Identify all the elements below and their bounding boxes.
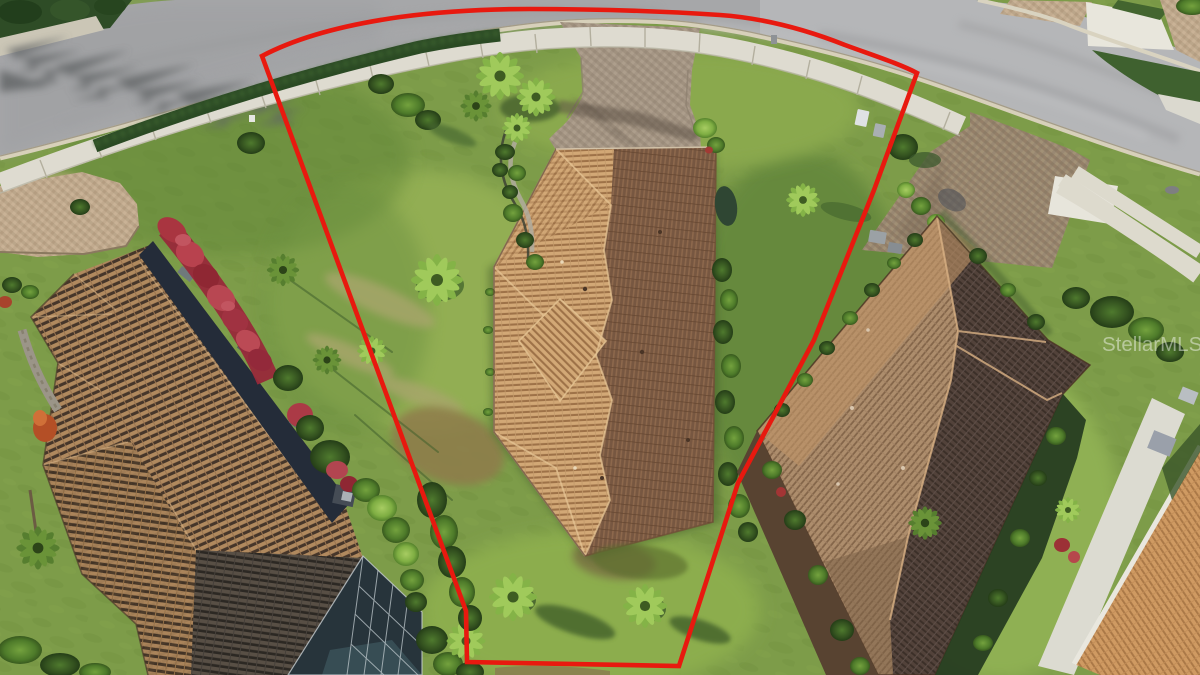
svg-text:StellarMLS: StellarMLS	[1102, 333, 1200, 356]
